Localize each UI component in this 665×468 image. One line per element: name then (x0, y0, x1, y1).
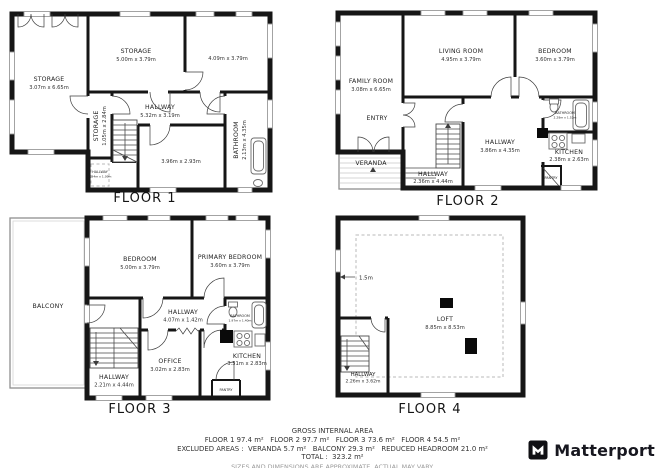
disclaimer-text: SIZES AND DIMENSIONS ARE APPROXIMATE, AC… (0, 463, 665, 468)
room-dims-bathroom: 2.13m x 4.35m (242, 120, 248, 160)
room-label-hallway-stairs: HALLWAY (99, 374, 129, 381)
room-dims-kitchen: 3.31m x 2.83m (227, 361, 267, 367)
room-dims-hallway-stairs: 2.36m x 4.44m (413, 179, 453, 185)
room-dims-hallway: 2.26m x 3.62m (345, 379, 381, 385)
room-dims-storage-left: 3.07m x 6.65m (29, 85, 69, 91)
room-label-bathroom: BATHROOM (233, 121, 240, 158)
room-dims-closet: 0.94m x 1.09m (89, 175, 112, 179)
floor-2-title: FLOOR 2 (333, 194, 603, 209)
floor-3-title: FLOOR 3 (0, 402, 280, 417)
room-label-kitchen: KITCHEN (555, 149, 583, 156)
floor-4-plan: 1.5m LOFT 8.85m x 8.53m HALLWAY 2.26m x … (333, 210, 543, 406)
room-dims-hallway-main: 4.07m x 1.42m (163, 318, 203, 324)
room-dims-bathroom: 2.28m x 1.52m (554, 116, 577, 120)
room-dims-storage-top: 5.00m x 3.79m (116, 57, 156, 63)
room-label-living-room: LIVING ROOM (439, 48, 483, 55)
room-label-pantry: PANTRY (220, 388, 234, 392)
room-label-family-room: FAMILY ROOM (349, 78, 393, 85)
room-label-bathroom: BATHROOM (230, 314, 250, 318)
room-label-office: OFFICE (158, 358, 181, 365)
room-label-veranda: VERANDA (355, 160, 387, 167)
room-dims-hallway-main: 3.86m x 4.35m (480, 148, 520, 154)
room-label-bathroom: BATHROOM (555, 111, 575, 115)
room-label-pantry: PANTRY (545, 176, 559, 180)
room-dims-office: 3.02m x 2.83m (150, 367, 190, 373)
floor-2-plan: FAMILY ROOM 3.08m x 6.65m ENTRY VERANDA … (333, 0, 603, 196)
room-label-hallway-main: HALLWAY (168, 309, 198, 316)
room-dims-primary-bedroom: 3.60m x 3.79m (210, 263, 250, 269)
room-label-storage-small: STORAGE (93, 111, 100, 142)
room-dims-living-room: 4.95m x 3.79m (441, 57, 481, 63)
room-label-hallway-stairs: HALLWAY (418, 171, 448, 178)
room-label-hallway-main: HALLWAY (485, 139, 515, 146)
floor-4-title: FLOOR 4 (333, 402, 527, 417)
room-label-balcony: BALCONY (33, 303, 64, 310)
floor-1-plan: STORAGE 3.07m x 6.65m STORAGE 5.00m x 3.… (0, 0, 290, 196)
gross-internal-area-heading: GROSS INTERNAL AREA (0, 427, 665, 436)
room-dims-bottom: 3.96m x 2.93m (161, 159, 201, 165)
matterport-logo-icon (528, 440, 548, 460)
room-label-kitchen: KITCHEN (233, 353, 261, 360)
room-label-loft: LOFT (437, 316, 453, 323)
room-dims-hallway: 5.32m x 3.19m (140, 113, 180, 119)
matterport-logo: Matterport (528, 440, 655, 460)
floor-1-title: FLOOR 1 (0, 191, 290, 206)
floor1-walls (12, 14, 270, 190)
room-label-entry: ENTRY (367, 115, 388, 122)
room-label-bedroom: BEDROOM (538, 48, 572, 55)
room-dims-top-right: 4.09m x 3.79m (208, 56, 248, 62)
room-dims-storage-small: 1.05m x 2.84m (102, 106, 108, 146)
room-label-hallway: HALLWAY (351, 372, 377, 378)
floor-3-plan: BALCONY BEDROOM 5.00m x 3.79m PRIMARY BE… (0, 210, 300, 406)
floor3-stairs-icon (90, 328, 138, 368)
room-dims-kitchen: 2.38m x 2.63m (549, 157, 589, 163)
room-label-primary-bedroom: PRIMARY BEDROOM (198, 254, 262, 261)
floor4-stairs-icon (341, 336, 369, 372)
room-dims-hallway-stairs: 2.21m x 4.44m (94, 383, 134, 389)
room-dims-bedroom: 3.60m x 3.79m (535, 57, 575, 63)
matterport-wordmark: Matterport (554, 441, 655, 460)
room-label-hallway: HALLWAY (145, 104, 175, 111)
room-label-closet: HALLWAY (92, 170, 109, 174)
room-dims-family-room: 3.08m x 6.65m (351, 87, 391, 93)
floor1-stairs-icon (113, 120, 137, 162)
floor2-veranda (339, 153, 402, 189)
room-dims-bathroom: 1.97m x 1.40m (229, 319, 252, 323)
room-dims-bedroom: 5.00m x 3.79m (120, 265, 160, 271)
room-label-storage-left: STORAGE (34, 76, 65, 83)
floorplan-sheet: STORAGE 3.07m x 6.65m STORAGE 5.00m x 3.… (0, 0, 665, 468)
room-label-bedroom: BEDROOM (123, 256, 157, 263)
room-dims-loft: 8.85m x 8.53m (425, 325, 465, 331)
headroom-dimension-label: 1.5m (359, 276, 373, 282)
room-label-storage-top: STORAGE (121, 48, 152, 55)
